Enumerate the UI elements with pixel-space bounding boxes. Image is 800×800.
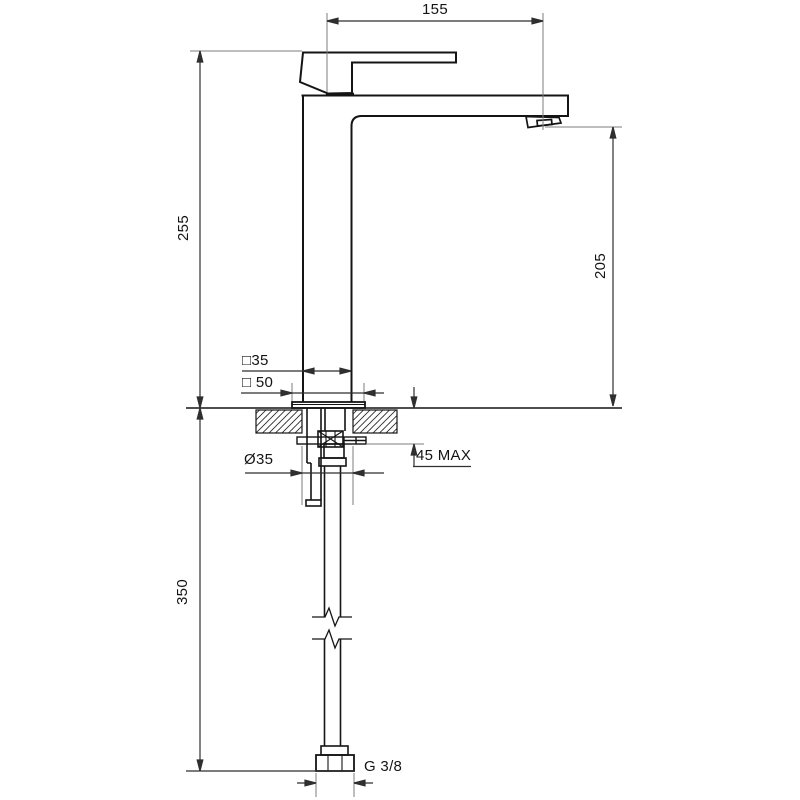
- dimension-255: [197, 51, 203, 408]
- ext-g38: [316, 773, 354, 797]
- pipe-collar: [319, 458, 346, 466]
- dim-label-body-section-square: □35: [242, 353, 269, 370]
- supply-pipe: [312, 466, 352, 746]
- countertop-section-right: [353, 410, 397, 433]
- mounting-stud-rod: [307, 463, 321, 500]
- drawing-linework: [0, 0, 800, 800]
- countertop-section-left: [256, 410, 302, 433]
- dim-label-base-square: □ 50: [242, 375, 273, 392]
- dimension-g38: [297, 780, 373, 786]
- ext-dia35: [302, 446, 353, 505]
- extension-lines: [190, 13, 622, 797]
- dimension-155: [327, 18, 543, 24]
- hose-nut-facets: [328, 755, 342, 771]
- dim-label-spout-height: 205: [593, 241, 611, 291]
- dim-label-max-deck-thickness: 45 MAX: [416, 448, 471, 465]
- shank-tube: [325, 408, 345, 431]
- hose-fitting: [316, 746, 354, 771]
- base-plate: [292, 402, 365, 408]
- dimension-dia35: [245, 470, 384, 476]
- dimension-lines: [186, 18, 616, 786]
- dim-label-hole-diameter: Ø35: [244, 452, 273, 469]
- hose-collar: [321, 746, 348, 755]
- pipe-break-lower: [312, 630, 352, 648]
- faucet-spout-body: [302, 96, 569, 403]
- dim-label-connection-thread: G 3/8: [364, 759, 402, 776]
- hose-nut: [316, 755, 354, 771]
- stud-foot: [306, 500, 321, 506]
- dim-label-spout-reach: 155: [400, 2, 470, 19]
- mounting-stud: [307, 408, 321, 463]
- faucet-outline: [186, 53, 622, 772]
- dim-label-hose-length: 350: [175, 567, 193, 617]
- faucet-handle: [300, 53, 456, 94]
- dim-label-body-height: 255: [176, 203, 194, 253]
- technical-drawing-canvas: 155 255 205 350 □35 □ 50 Ø35 45 MAX G 3/…: [0, 0, 800, 800]
- dimension-205: [610, 127, 616, 406]
- supply-pipe-lower: [325, 640, 341, 747]
- pipe-break-upper: [312, 608, 352, 626]
- supply-pipe-upper: [325, 466, 341, 617]
